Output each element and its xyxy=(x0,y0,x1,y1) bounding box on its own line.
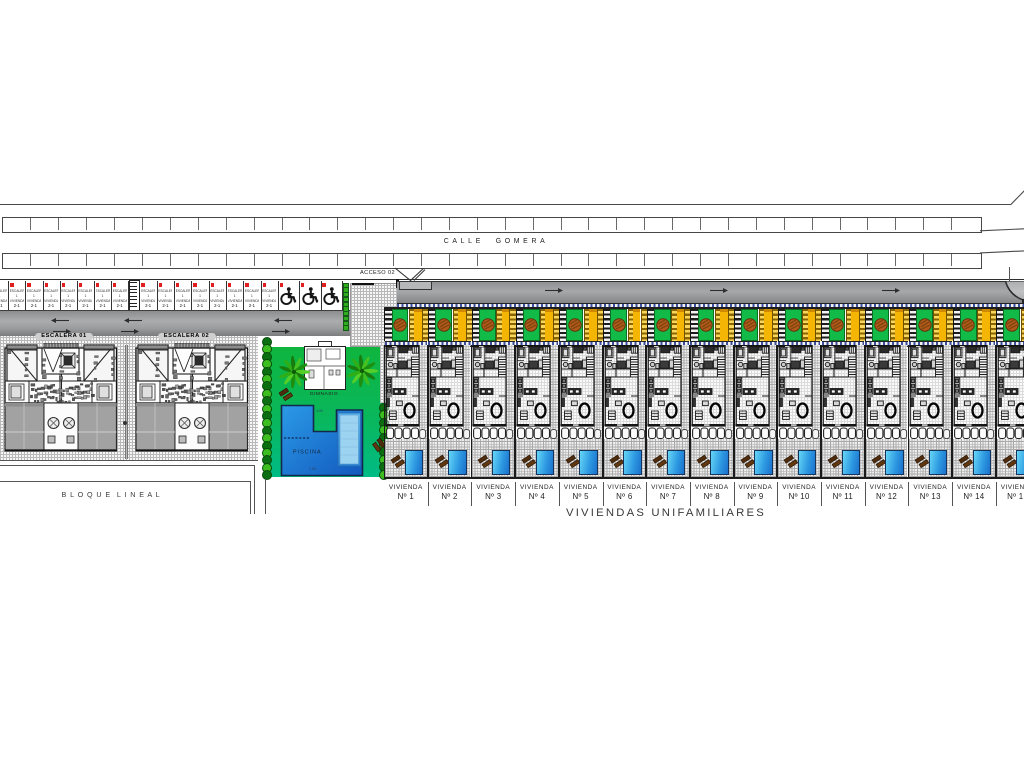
svg-text:7.00: 7.00 xyxy=(309,467,316,471)
svg-text:4.00: 4.00 xyxy=(316,409,323,413)
svg-text:PISCINA: PISCINA xyxy=(293,450,322,456)
